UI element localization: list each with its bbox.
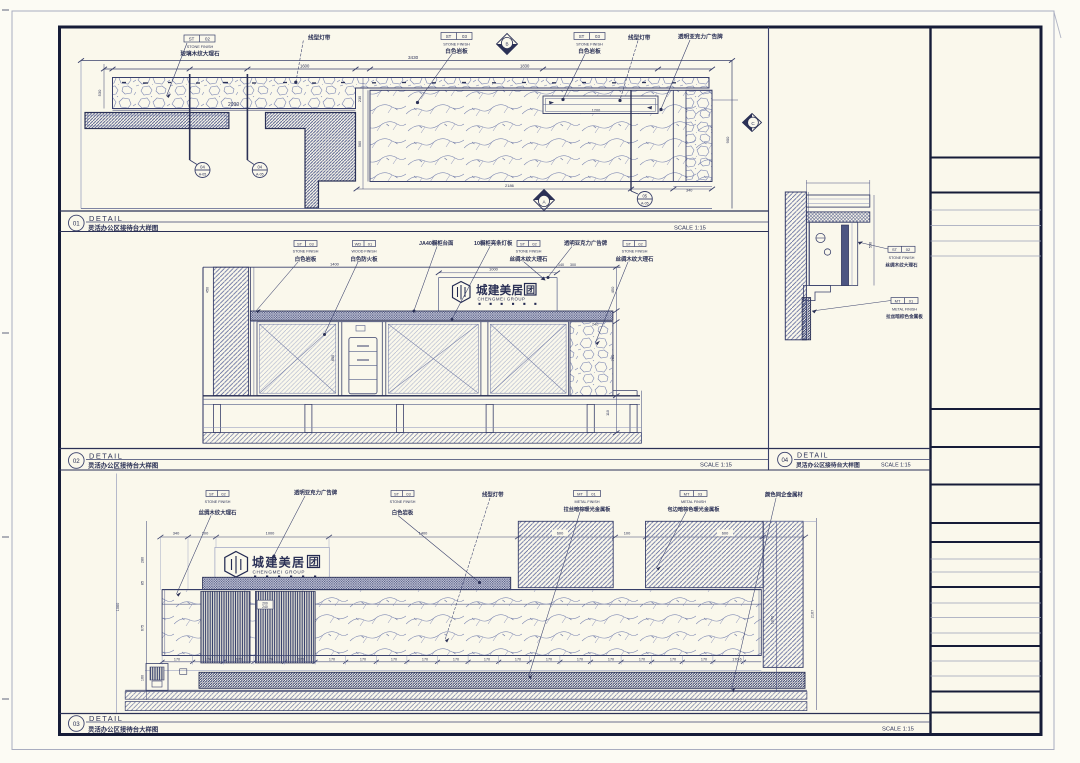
svg-text:城建美居: 城建美居 bbox=[252, 555, 304, 570]
svg-text:透明亚克力广告牌: 透明亚克力广告牌 bbox=[678, 33, 723, 41]
svg-text:颜色同企金属材: 颜色同企金属材 bbox=[765, 491, 803, 499]
svg-text:ST: ST bbox=[209, 491, 215, 496]
svg-text:240: 240 bbox=[262, 605, 268, 609]
svg-text:170: 170 bbox=[391, 657, 397, 661]
svg-text:170: 170 bbox=[422, 657, 428, 661]
svg-text:团: 团 bbox=[309, 557, 319, 569]
svg-text:丝绸木纹大理石: 丝绸木纹大理石 bbox=[616, 255, 654, 263]
svg-text:1600: 1600 bbox=[300, 64, 310, 69]
svg-text:ST: ST bbox=[446, 34, 452, 39]
svg-text:170: 170 bbox=[205, 657, 211, 661]
svg-text:170: 170 bbox=[174, 657, 180, 661]
svg-text:230: 230 bbox=[358, 96, 362, 102]
svg-text:A-05: A-05 bbox=[641, 202, 649, 206]
svg-text:675: 675 bbox=[141, 625, 145, 631]
svg-text:包边暗棕色暖光金属板: 包边暗棕色暖光金属板 bbox=[668, 505, 721, 513]
svg-text:01: 01 bbox=[368, 241, 373, 246]
svg-text:DETAIL: DETAIL bbox=[89, 451, 123, 460]
svg-text:530: 530 bbox=[97, 89, 102, 96]
svg-text:DETAIL: DETAIL bbox=[797, 452, 829, 459]
svg-text:WOOD FINISH: WOOD FINISH bbox=[352, 250, 377, 254]
svg-text:STONE FINISH: STONE FINISH bbox=[443, 43, 470, 47]
svg-text:1830: 1830 bbox=[520, 64, 530, 69]
svg-text:白色岩板: 白色岩板 bbox=[578, 47, 601, 55]
svg-text:团: 团 bbox=[526, 285, 535, 295]
svg-text:STONE FINISH: STONE FINISH bbox=[293, 250, 319, 254]
svg-text:450: 450 bbox=[610, 286, 615, 293]
svg-text:METAL FINISH: METAL FINISH bbox=[681, 500, 706, 504]
svg-text:SCALE 1:15: SCALE 1:15 bbox=[674, 226, 706, 232]
svg-text:160: 160 bbox=[141, 675, 145, 681]
svg-text:灵活办公区接待台大样图: 灵活办公区接待台大样图 bbox=[88, 223, 158, 232]
svg-text:04: 04 bbox=[781, 458, 788, 464]
svg-text:STONE FINISH: STONE FINISH bbox=[187, 45, 214, 49]
svg-text:170: 170 bbox=[329, 657, 335, 661]
svg-text:2167: 2167 bbox=[811, 610, 815, 618]
svg-text:1200: 1200 bbox=[592, 109, 600, 113]
svg-text:100: 100 bbox=[202, 531, 209, 536]
svg-text:02: 02 bbox=[638, 241, 643, 246]
svg-text:线型灯带: 线型灯带 bbox=[628, 34, 651, 42]
svg-text:STONE FINISH: STONE FINISH bbox=[390, 500, 416, 504]
svg-text:A-05: A-05 bbox=[256, 173, 264, 177]
svg-text:04: 04 bbox=[200, 165, 205, 170]
svg-text:03: 03 bbox=[595, 34, 600, 39]
svg-text:METAL FINISH: METAL FINISH bbox=[892, 307, 917, 311]
svg-text:B: B bbox=[505, 42, 508, 47]
svg-text:ST: ST bbox=[892, 247, 898, 252]
svg-text:拉丝暗棕色金属板: 拉丝暗棕色金属板 bbox=[886, 313, 923, 320]
svg-text:04: 04 bbox=[257, 165, 262, 170]
svg-text:白色岩板: 白色岩板 bbox=[445, 47, 468, 55]
svg-text:170: 170 bbox=[670, 657, 676, 661]
svg-text:STONE FINISH: STONE FINISH bbox=[516, 250, 542, 254]
svg-text:灵活办公区接待台大样图: 灵活办公区接待台大样图 bbox=[88, 724, 158, 733]
svg-text:240: 240 bbox=[592, 323, 598, 327]
svg-text:170: 170 bbox=[236, 657, 242, 661]
svg-text:拉丝暗棕暖光金属板: 拉丝暗棕暖光金属板 bbox=[564, 505, 612, 513]
svg-text:450: 450 bbox=[206, 287, 210, 293]
svg-text:140: 140 bbox=[558, 263, 564, 267]
svg-text:A-05: A-05 bbox=[199, 173, 207, 177]
svg-text:170: 170 bbox=[453, 657, 459, 661]
svg-text:340: 340 bbox=[173, 531, 180, 536]
svg-text:MT: MT bbox=[895, 298, 901, 303]
svg-text:ST: ST bbox=[520, 241, 526, 246]
svg-text:3430: 3430 bbox=[408, 55, 419, 60]
svg-text:CHENGMEI GROUP: CHENGMEI GROUP bbox=[253, 570, 306, 575]
svg-text:线型灯带: 线型灯带 bbox=[308, 34, 331, 42]
svg-text:透明亚克力广告牌: 透明亚克力广告牌 bbox=[294, 489, 338, 497]
svg-text:2090: 2090 bbox=[228, 102, 239, 108]
svg-text:170: 170 bbox=[298, 657, 304, 661]
svg-text:170: 170 bbox=[360, 657, 366, 661]
svg-text:1060: 1060 bbox=[116, 603, 120, 611]
svg-text:DETAIL: DETAIL bbox=[89, 214, 123, 223]
svg-text:03: 03 bbox=[462, 34, 467, 39]
svg-text:白色岩板: 白色岩板 bbox=[392, 509, 414, 517]
svg-text:170: 170 bbox=[639, 657, 645, 661]
svg-text:10橱柜亮条灯板: 10橱柜亮条灯板 bbox=[474, 239, 513, 247]
svg-text:ST: ST bbox=[626, 241, 632, 246]
svg-text:02: 02 bbox=[73, 458, 80, 465]
svg-text:280: 280 bbox=[141, 557, 145, 563]
svg-text:灵活办公区接待台大样图: 灵活办公区接待台大样图 bbox=[796, 461, 860, 469]
svg-text:城建美居: 城建美居 bbox=[476, 283, 524, 297]
svg-text:1000: 1000 bbox=[266, 531, 275, 536]
svg-text:ST: ST bbox=[189, 37, 195, 42]
svg-text:丝绸木纹大理石: 丝绸木纹大理石 bbox=[199, 509, 237, 517]
svg-text:560: 560 bbox=[358, 141, 362, 147]
svg-text:02: 02 bbox=[906, 247, 911, 252]
svg-text:170: 170 bbox=[577, 657, 583, 661]
svg-text:白色防火板: 白色防火板 bbox=[351, 255, 379, 263]
svg-text:02: 02 bbox=[205, 37, 210, 42]
svg-text:85: 85 bbox=[141, 581, 145, 585]
svg-text:170: 170 bbox=[515, 657, 521, 661]
svg-text:SCALE 1:15: SCALE 1:15 bbox=[881, 463, 911, 469]
svg-text:650: 650 bbox=[331, 355, 335, 361]
svg-text:02: 02 bbox=[221, 491, 226, 496]
svg-text:ST: ST bbox=[297, 241, 303, 246]
svg-text:MT: MT bbox=[684, 491, 690, 496]
svg-text:110: 110 bbox=[606, 410, 610, 416]
svg-text:170: 170 bbox=[267, 657, 273, 661]
svg-text:900: 900 bbox=[725, 136, 730, 143]
svg-text:1400: 1400 bbox=[419, 531, 428, 536]
svg-text:JA40橱柜台面: JA40橱柜台面 bbox=[419, 239, 454, 247]
svg-text:丝绸木纹大理石: 丝绸木纹大理石 bbox=[510, 255, 548, 263]
svg-text:1000: 1000 bbox=[489, 267, 499, 272]
svg-text:170: 170 bbox=[546, 657, 552, 661]
svg-text:600: 600 bbox=[722, 531, 729, 536]
svg-text:01: 01 bbox=[909, 298, 914, 303]
svg-text:01: 01 bbox=[591, 491, 596, 496]
svg-text:DETAIL: DETAIL bbox=[89, 714, 123, 723]
svg-text:灵活办公区接待台大样图: 灵活办公区接待台大样图 bbox=[88, 460, 158, 469]
svg-text:STONE FINISH: STONE FINISH bbox=[205, 500, 231, 504]
svg-text:STONE FINISH: STONE FINISH bbox=[889, 256, 915, 260]
svg-text:线型灯带: 线型灯带 bbox=[482, 491, 504, 499]
svg-text:170: 170 bbox=[484, 657, 490, 661]
svg-text:03: 03 bbox=[406, 491, 411, 496]
svg-text:2186: 2186 bbox=[505, 183, 515, 188]
svg-text:1070: 1070 bbox=[771, 616, 775, 624]
svg-text:170: 170 bbox=[701, 657, 707, 661]
svg-text:170-6: 170-6 bbox=[732, 657, 741, 661]
svg-text:03: 03 bbox=[309, 241, 314, 246]
svg-text:STONE FINISH: STONE FINISH bbox=[622, 250, 648, 254]
svg-text:05: 05 bbox=[642, 194, 647, 199]
svg-text:METAL FINISH: METAL FINISH bbox=[575, 500, 600, 504]
svg-text:170: 170 bbox=[608, 657, 614, 661]
svg-text:ST: ST bbox=[394, 491, 400, 496]
svg-text:ST: ST bbox=[579, 34, 585, 39]
svg-text:03: 03 bbox=[73, 721, 80, 728]
svg-text:玻璃木纹大理石: 玻璃木纹大理石 bbox=[180, 50, 220, 58]
svg-text:1400: 1400 bbox=[330, 262, 340, 267]
svg-text:750: 750 bbox=[610, 354, 615, 361]
svg-text:STONE FINISH: STONE FINISH bbox=[576, 43, 603, 47]
svg-text:WD: WD bbox=[355, 241, 362, 246]
svg-text:CHENGMEI GROUP: CHENGMEI GROUP bbox=[478, 297, 526, 302]
svg-text:01: 01 bbox=[73, 221, 80, 228]
svg-text:丝绸木纹大理石: 丝绸木纹大理石 bbox=[885, 262, 918, 269]
svg-text:白色岩板: 白色岩板 bbox=[295, 255, 317, 263]
svg-text:透明亚克力广告牌: 透明亚克力广告牌 bbox=[564, 239, 608, 247]
svg-text:SCALE 1:15: SCALE 1:15 bbox=[700, 463, 732, 469]
svg-text:300: 300 bbox=[570, 263, 576, 267]
svg-text:02: 02 bbox=[532, 241, 537, 246]
svg-text:MT: MT bbox=[577, 491, 583, 496]
svg-text:SCALE 1:15: SCALE 1:15 bbox=[882, 727, 914, 733]
svg-text:600: 600 bbox=[557, 531, 564, 536]
svg-text:03: 03 bbox=[698, 491, 703, 496]
svg-text:100: 100 bbox=[624, 531, 631, 536]
